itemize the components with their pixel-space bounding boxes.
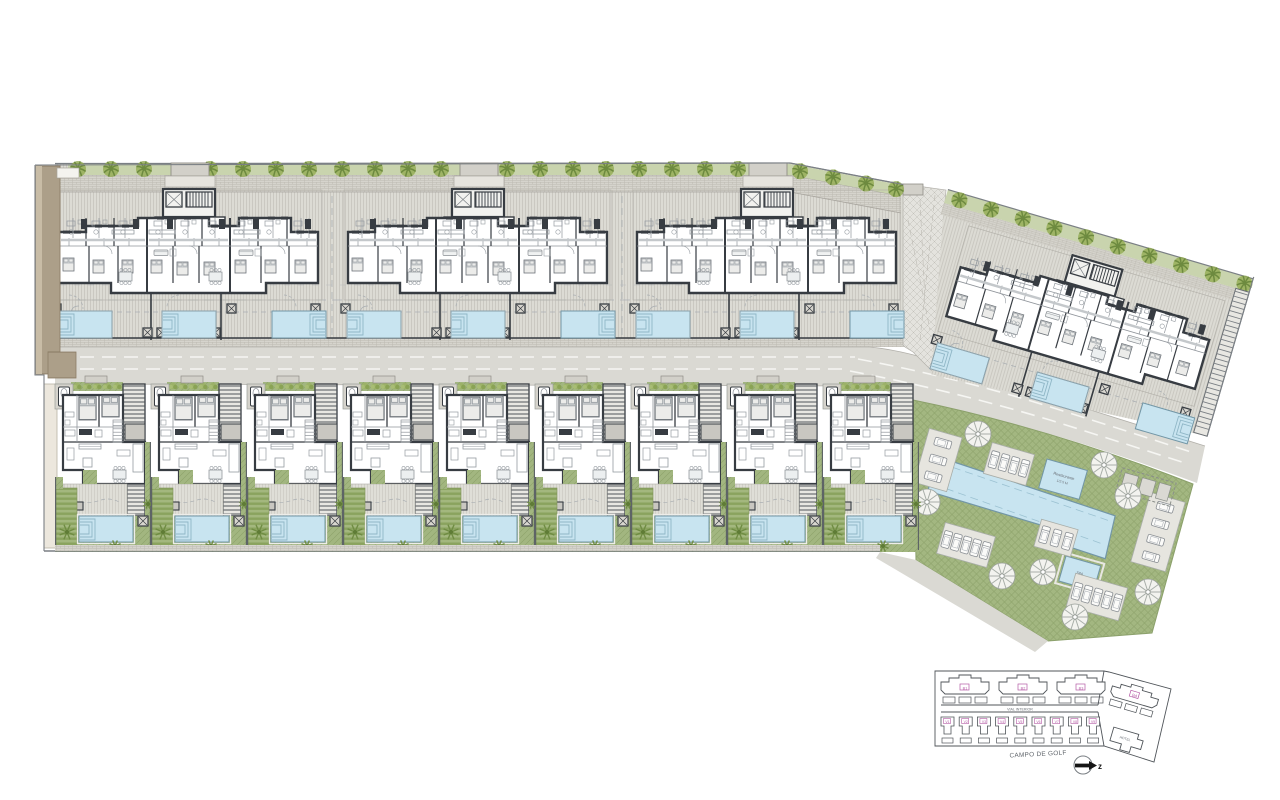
svg-text:B2: B2: [1021, 687, 1026, 691]
svg-text:B1: B1: [963, 687, 968, 691]
svg-text:V2: V2: [964, 720, 968, 724]
svg-text:V8: V8: [1073, 720, 1077, 724]
svg-text:V4: V4: [1000, 720, 1004, 724]
svg-text:VIAL INTERIOR: VIAL INTERIOR: [1007, 708, 1033, 712]
svg-text:V5: V5: [1018, 720, 1022, 724]
svg-text:V1: V1: [945, 720, 949, 724]
svg-text:z: z: [1098, 762, 1102, 771]
svg-text:V7: V7: [1055, 720, 1059, 724]
svg-text:B3: B3: [1079, 687, 1084, 691]
svg-text:V6: V6: [1036, 720, 1040, 724]
svg-text:V9: V9: [1091, 720, 1095, 724]
svg-text:V3: V3: [982, 720, 986, 724]
